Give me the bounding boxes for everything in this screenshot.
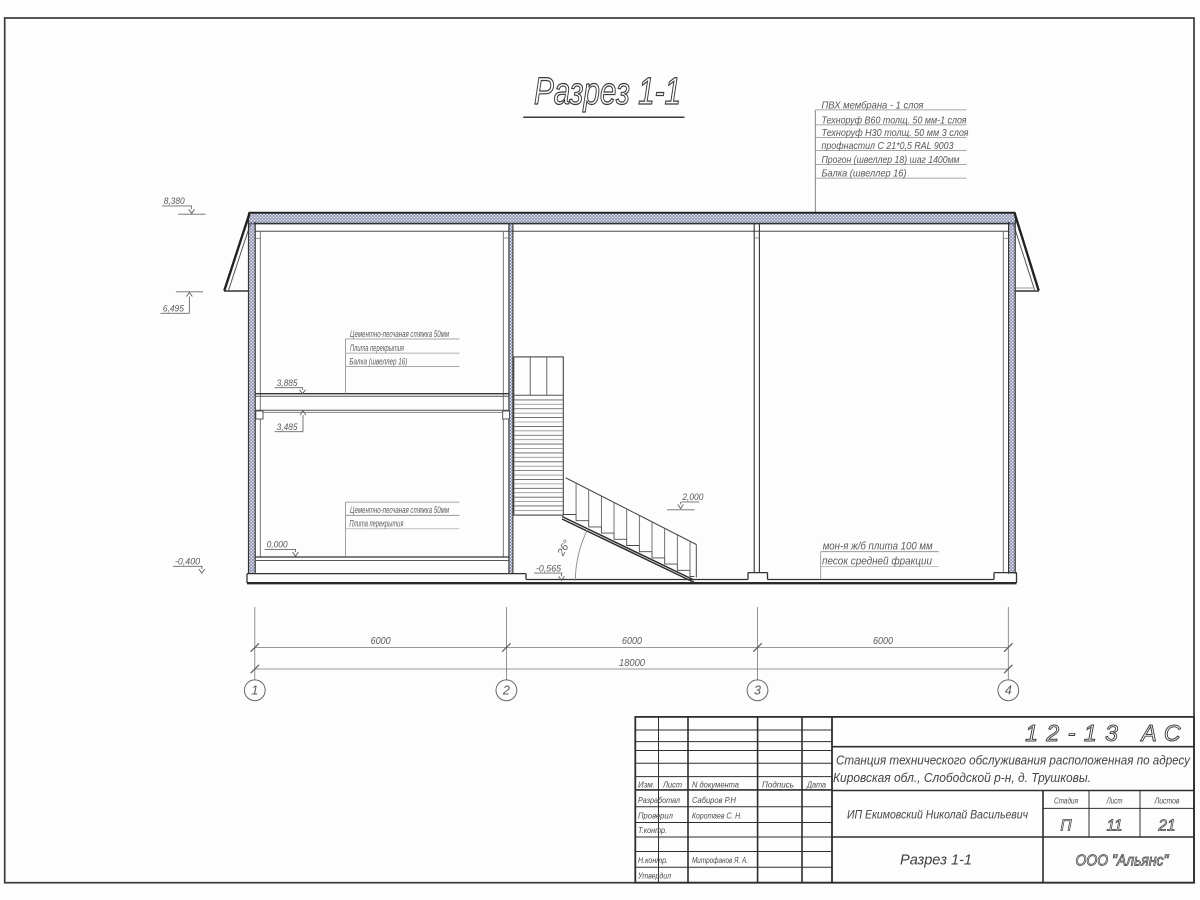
svg-text:0,000: 0,000	[267, 540, 289, 551]
svg-text:2: 2	[502, 684, 510, 698]
svg-text:П: П	[1060, 818, 1072, 835]
svg-text:12-13 АС: 12-13 АС	[1025, 720, 1189, 746]
svg-text:Митрофанов Я. А.: Митрофанов Я. А.	[692, 856, 748, 865]
svg-text:Лист: Лист	[1106, 796, 1123, 805]
svg-text:21: 21	[1157, 818, 1175, 835]
svg-text:профнастил С 21*0,5 RAL 9003: профнастил С 21*0,5 RAL 9003	[822, 140, 954, 152]
svg-text:Разрез 1-1: Разрез 1-1	[534, 71, 681, 113]
svg-text:ПВХ мембрана - 1 слоя: ПВХ мембрана - 1 слоя	[822, 99, 924, 111]
svg-text:3: 3	[754, 684, 761, 698]
svg-text:Станция технического обслужива: Станция технического обслуживания распол…	[836, 754, 1191, 768]
svg-text:песок средней фракции: песок средней фракции	[822, 556, 932, 568]
svg-text:11: 11	[1106, 818, 1122, 835]
svg-text:Изм.: Изм.	[638, 780, 655, 789]
svg-text:Разрез 1-1: Разрез 1-1	[900, 852, 972, 869]
svg-text:6000: 6000	[873, 636, 893, 647]
svg-text:N документа: N документа	[692, 780, 740, 789]
svg-text:Балка (швеллер 16): Балка (швеллер 16)	[349, 357, 407, 367]
svg-text:6000: 6000	[622, 636, 642, 647]
svg-text:6000: 6000	[371, 636, 391, 647]
svg-text:Техноруф В60 толщ. 50 мм-1 сло: Техноруф В60 толщ. 50 мм-1 слоя	[822, 114, 967, 126]
svg-text:Прогон (швеллер 18) шаг 1400мм: Прогон (швеллер 18) шаг 1400мм	[822, 154, 960, 166]
svg-text:Дата: Дата	[806, 780, 827, 789]
svg-text:4: 4	[1005, 684, 1012, 698]
svg-text:Н.контр.: Н.контр.	[638, 856, 668, 865]
svg-text:ИП Екимовский Николай Васильев: ИП Екимовский Николай Васильевич	[847, 808, 1028, 822]
svg-text:Подпись: Подпись	[762, 780, 794, 789]
svg-text:Проверил: Проверил	[638, 811, 674, 820]
svg-text:Цементно-песчаная стяжка 50мм: Цементно-песчаная стяжка 50мм	[350, 505, 449, 515]
svg-text:Т.контр.: Т.контр.	[638, 826, 667, 835]
svg-text:1: 1	[251, 684, 258, 698]
svg-text:Коротаев С. Н.: Коротаев С. Н.	[692, 811, 742, 820]
svg-text:Техноруф Н30 толщ. 50 мм 3 сло: Техноруф Н30 толщ. 50 мм 3 слоя	[822, 127, 969, 139]
svg-text:Балка (швеллер 16): Балка (швеллер 16)	[822, 168, 907, 180]
svg-text:Сабиров Р.Н: Сабиров Р.Н	[692, 796, 736, 805]
svg-text:Разработал: Разработал	[638, 796, 681, 805]
svg-text:Плита перекрытия: Плита перекрытия	[350, 343, 404, 353]
svg-text:ООО "Альянс": ООО "Альянс"	[1076, 853, 1170, 870]
svg-text:Листов: Листов	[1154, 796, 1180, 805]
svg-text:Кировская обл., Слободской р-н: Кировская обл., Слободской р-н, д. Трушк…	[833, 771, 1091, 785]
svg-text:мон-я ж/б плита 100 мм: мон-я ж/б плита 100 мм	[823, 541, 934, 553]
svg-text:Плита перекрытия: Плита перекрытия	[349, 518, 403, 528]
svg-text:Стадия: Стадия	[1054, 796, 1079, 805]
svg-text:Лист: Лист	[662, 780, 682, 789]
svg-text:Утвердил: Утвердил	[637, 871, 671, 880]
svg-text:18000: 18000	[619, 658, 645, 669]
svg-text:Цементно-песчаная стяжка 50мм: Цементно-песчаная стяжка 50мм	[350, 329, 449, 339]
